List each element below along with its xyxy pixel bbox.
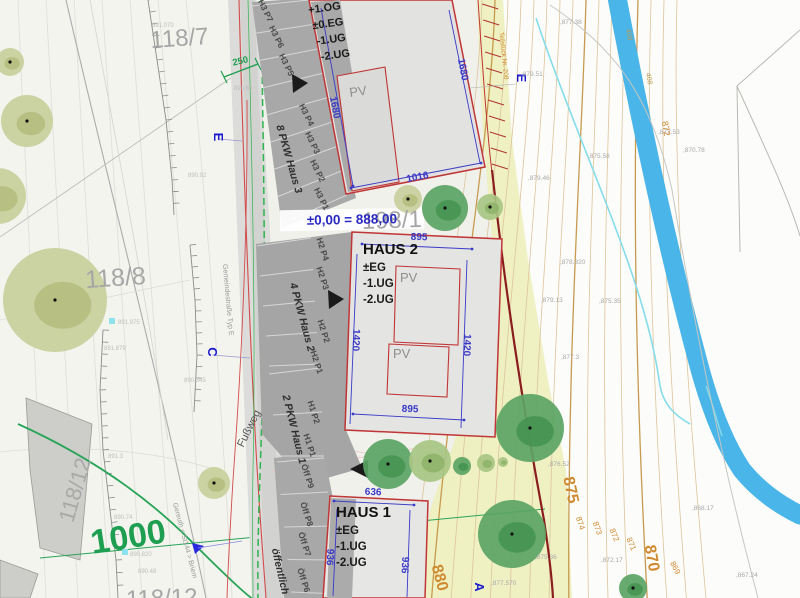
spot-elevation: ,875.35 [599,298,621,305]
spot-elevation: 890.48 [138,569,157,575]
tree-trunk-dot [53,298,56,301]
tree-trunk-dot [488,205,491,208]
tree-trunk-dot [443,206,446,209]
haus2-level-eg: ±EG [363,262,386,274]
haus2-dim-right: 1420 [461,334,473,357]
tree-canopy-shade [436,200,461,221]
tree-canopy-shade [17,112,46,135]
slope-hatch-tick [190,244,196,245]
spot-elevation: ,877.3 [561,354,579,361]
tree-canopy-shade [402,194,417,207]
haus1-level-eg: ±EG [336,525,359,537]
dim-dot [350,187,353,190]
spot-elevation: 890.74 [114,515,133,521]
haus1-dim-left: 936 [324,549,336,567]
tree-canopy-shade [34,282,91,329]
spot-elevation: ,867.24 [736,572,758,579]
spot-elevation: ,875.36 [535,554,557,561]
dim-dot [352,413,355,416]
spot-elevation: ,879.46 [528,175,550,182]
dim-dot [471,248,474,251]
spot-elevation: ,877.38 [560,19,582,26]
haus2-level-1ug: -1.UG [363,278,394,290]
haus2-dim-bottom: 895 [402,404,419,416]
dim-dot [352,185,355,188]
haus1-name: HAUS 1 [336,504,391,521]
haus2-name: HAUS 2 [363,241,418,258]
dim-dot [463,419,466,422]
section-marker-c: C [205,347,220,357]
tree-canopy-shade [498,522,535,553]
site-plan[interactable]: 118/7 118/8 118/12 198/1 1000 118/12 +1.… [0,0,800,598]
slope-hatch-tick [193,277,199,278]
tree-canopy-shade [482,460,492,468]
haus2-pv-upper-label: PV [400,270,418,285]
spot-elevation: ,875.58 [588,153,610,160]
spot-elevation: 891.3 [108,454,124,460]
section-marker-e-left: E [211,133,226,142]
haus1-level-2ug: -2.UG [336,557,367,569]
tree-trunk-dot [386,462,389,465]
spot-elevation: 890.820 [130,552,152,558]
tree-canopy-shade [627,583,642,596]
spot-elevation: 891.070 [152,23,174,29]
tree-trunk-dot [510,532,513,535]
haus1-dim-right: 936 [399,557,411,575]
dim-dot [333,500,336,503]
site-plan-canvas[interactable]: 118/7 118/8 118/12 198/1 1000 118/12 +1.… [0,0,800,598]
tree-canopy-shade [378,455,406,478]
spot-elevation: ,879.51 [521,71,543,78]
section-marker-a: A [472,582,487,592]
spot-elevation: ,868.17 [692,505,714,512]
haus2-dim-left: 1420 [350,329,362,352]
haus2-dim-top: 895 [411,232,428,244]
spot-elevation: 891.975 [118,320,140,326]
spot-elevation: 890.92 [188,173,207,179]
spot-elevation: ,872.17 [601,557,623,564]
tree-trunk-dot [631,586,634,589]
spot-elevation: 891.879 [104,346,126,352]
survey-marker [109,318,115,324]
tree-canopy-shade [422,454,445,473]
slope-hatch-tick [192,266,198,267]
tree-canopy-shade [4,57,19,70]
spot-elevation: ,878.320 [560,259,586,266]
tree-trunk-dot [428,459,431,462]
dim-dot [413,504,416,507]
tree-trunk-dot [212,481,215,484]
dim-dot [480,162,483,165]
tree-trunk-dot [528,426,531,429]
haus2-pv-lower-label: PV [393,346,411,361]
spot-elevation: ,870.78 [683,147,705,154]
tree-canopy-shade [516,416,553,447]
benchmark-label: ±0,00 = 888,00 [307,211,398,228]
tree-trunk-dot [25,119,28,122]
spot-elevation: ,876.52 [548,461,570,468]
tree-trunk-dot [406,197,409,200]
tree-canopy-shade [458,463,468,471]
spot-elevation: 890.60 [234,86,253,92]
spot-elevation: ,877.570 [491,580,517,587]
slope-hatch-tick [191,255,197,256]
haus1-dim-top: 636 [365,487,383,499]
haus1-level-1ug: -1.UG [336,541,367,553]
tree-canopy-shade [485,202,499,214]
parcel-label-118-12-bottom: 118/12 [125,584,198,598]
parcel-label-118-8: 118/8 [84,262,147,294]
tree-canopy-shade [208,477,226,491]
spot-elevation: 890.345 [184,378,206,384]
tree-canopy-shade [501,460,507,465]
tree-trunk-dot [8,60,11,63]
haus2-level-2ug: -2.UG [363,294,394,306]
slope-hatch-tick [194,288,200,289]
spot-elevation: ,879.13 [541,297,563,304]
haus3-pv-label: PV [348,83,368,100]
